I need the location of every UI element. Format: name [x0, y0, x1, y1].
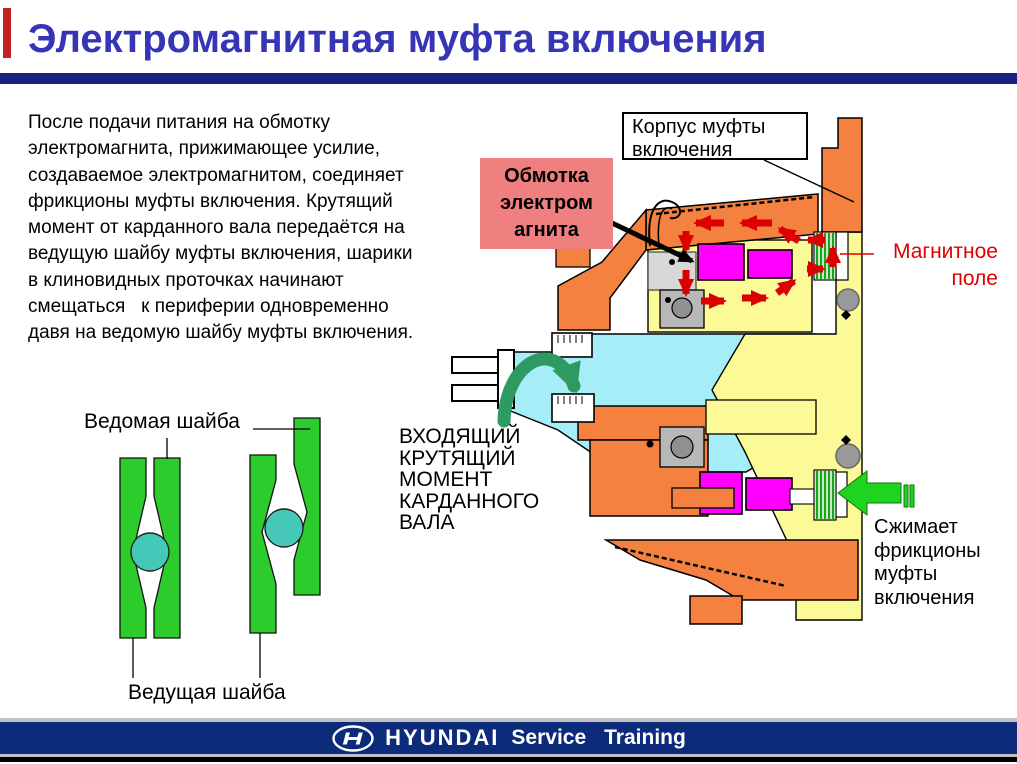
lower-shaft-bar	[790, 489, 816, 504]
title-underline-rule	[0, 73, 1017, 84]
page-title: Электромагнитная муфта включения	[28, 17, 767, 62]
driving-washer-label: Ведущая шайба	[128, 681, 286, 705]
driven-washer-label: Ведомая шайба	[84, 410, 240, 434]
coil-label: Обмотка электром агнита	[480, 158, 613, 249]
lower-shaft-stub	[672, 488, 734, 508]
magnetic-field-label: Магнитное поле	[856, 238, 998, 292]
footer-bar: HYUNDAI Service Training	[0, 722, 1017, 754]
driving-washer-plate-2	[250, 455, 276, 633]
bottom-housing-step	[690, 596, 742, 624]
input-torque-label: ВХОДЯЩИЙ КРУТЯЩИЙ МОМЕНТ КАРДАННОГО ВАЛА	[399, 426, 539, 534]
footer-black-strip	[0, 757, 1017, 762]
ball-left	[131, 533, 169, 571]
compress-friction-label: Сжимает фрикционы муфты включения	[874, 516, 981, 610]
upper-pressure-strip	[836, 232, 848, 280]
body-paragraph: После подачи питания на обмотку электром…	[28, 110, 498, 347]
lower-friction-discs	[814, 470, 836, 520]
slide: Электромагнитная муфта включения После п…	[0, 0, 1017, 764]
washer-ball-diagram	[60, 400, 400, 720]
hyundai-logo-icon	[331, 725, 375, 752]
red-accent-bar	[3, 8, 11, 58]
lower-chamber	[706, 400, 816, 434]
right-housing-block	[822, 118, 862, 232]
rivet-dot	[669, 259, 675, 265]
upper-bearing	[660, 290, 704, 328]
driven-washer-plate-2	[294, 418, 320, 595]
housing-label: Корпус муфты включения	[622, 112, 808, 160]
footer-brand: HYUNDAI	[385, 725, 499, 751]
footer-service: Service	[511, 726, 586, 750]
bottom-housing	[606, 540, 858, 600]
small-orange-block	[556, 247, 590, 267]
footer-training: Training	[604, 726, 686, 750]
ball-right	[265, 509, 303, 547]
